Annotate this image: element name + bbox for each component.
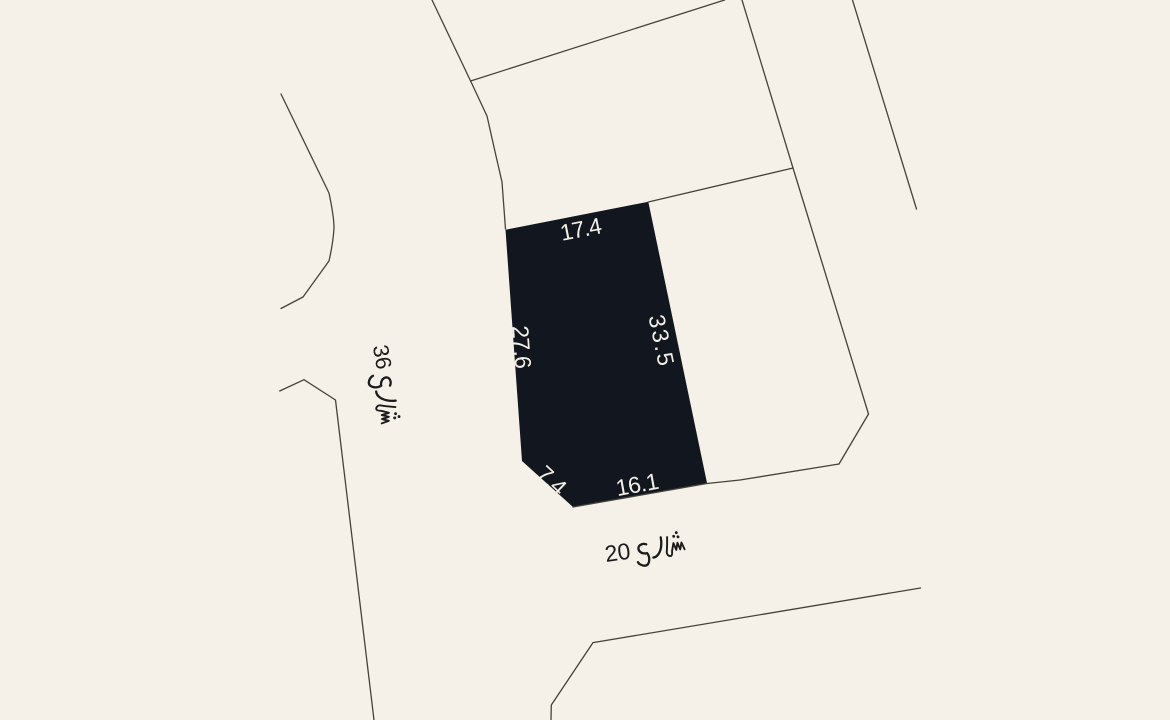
svg-text:27.6: 27.6 bbox=[507, 325, 536, 370]
svg-text:20: 20 bbox=[603, 538, 632, 567]
svg-text:36: 36 bbox=[368, 343, 397, 371]
